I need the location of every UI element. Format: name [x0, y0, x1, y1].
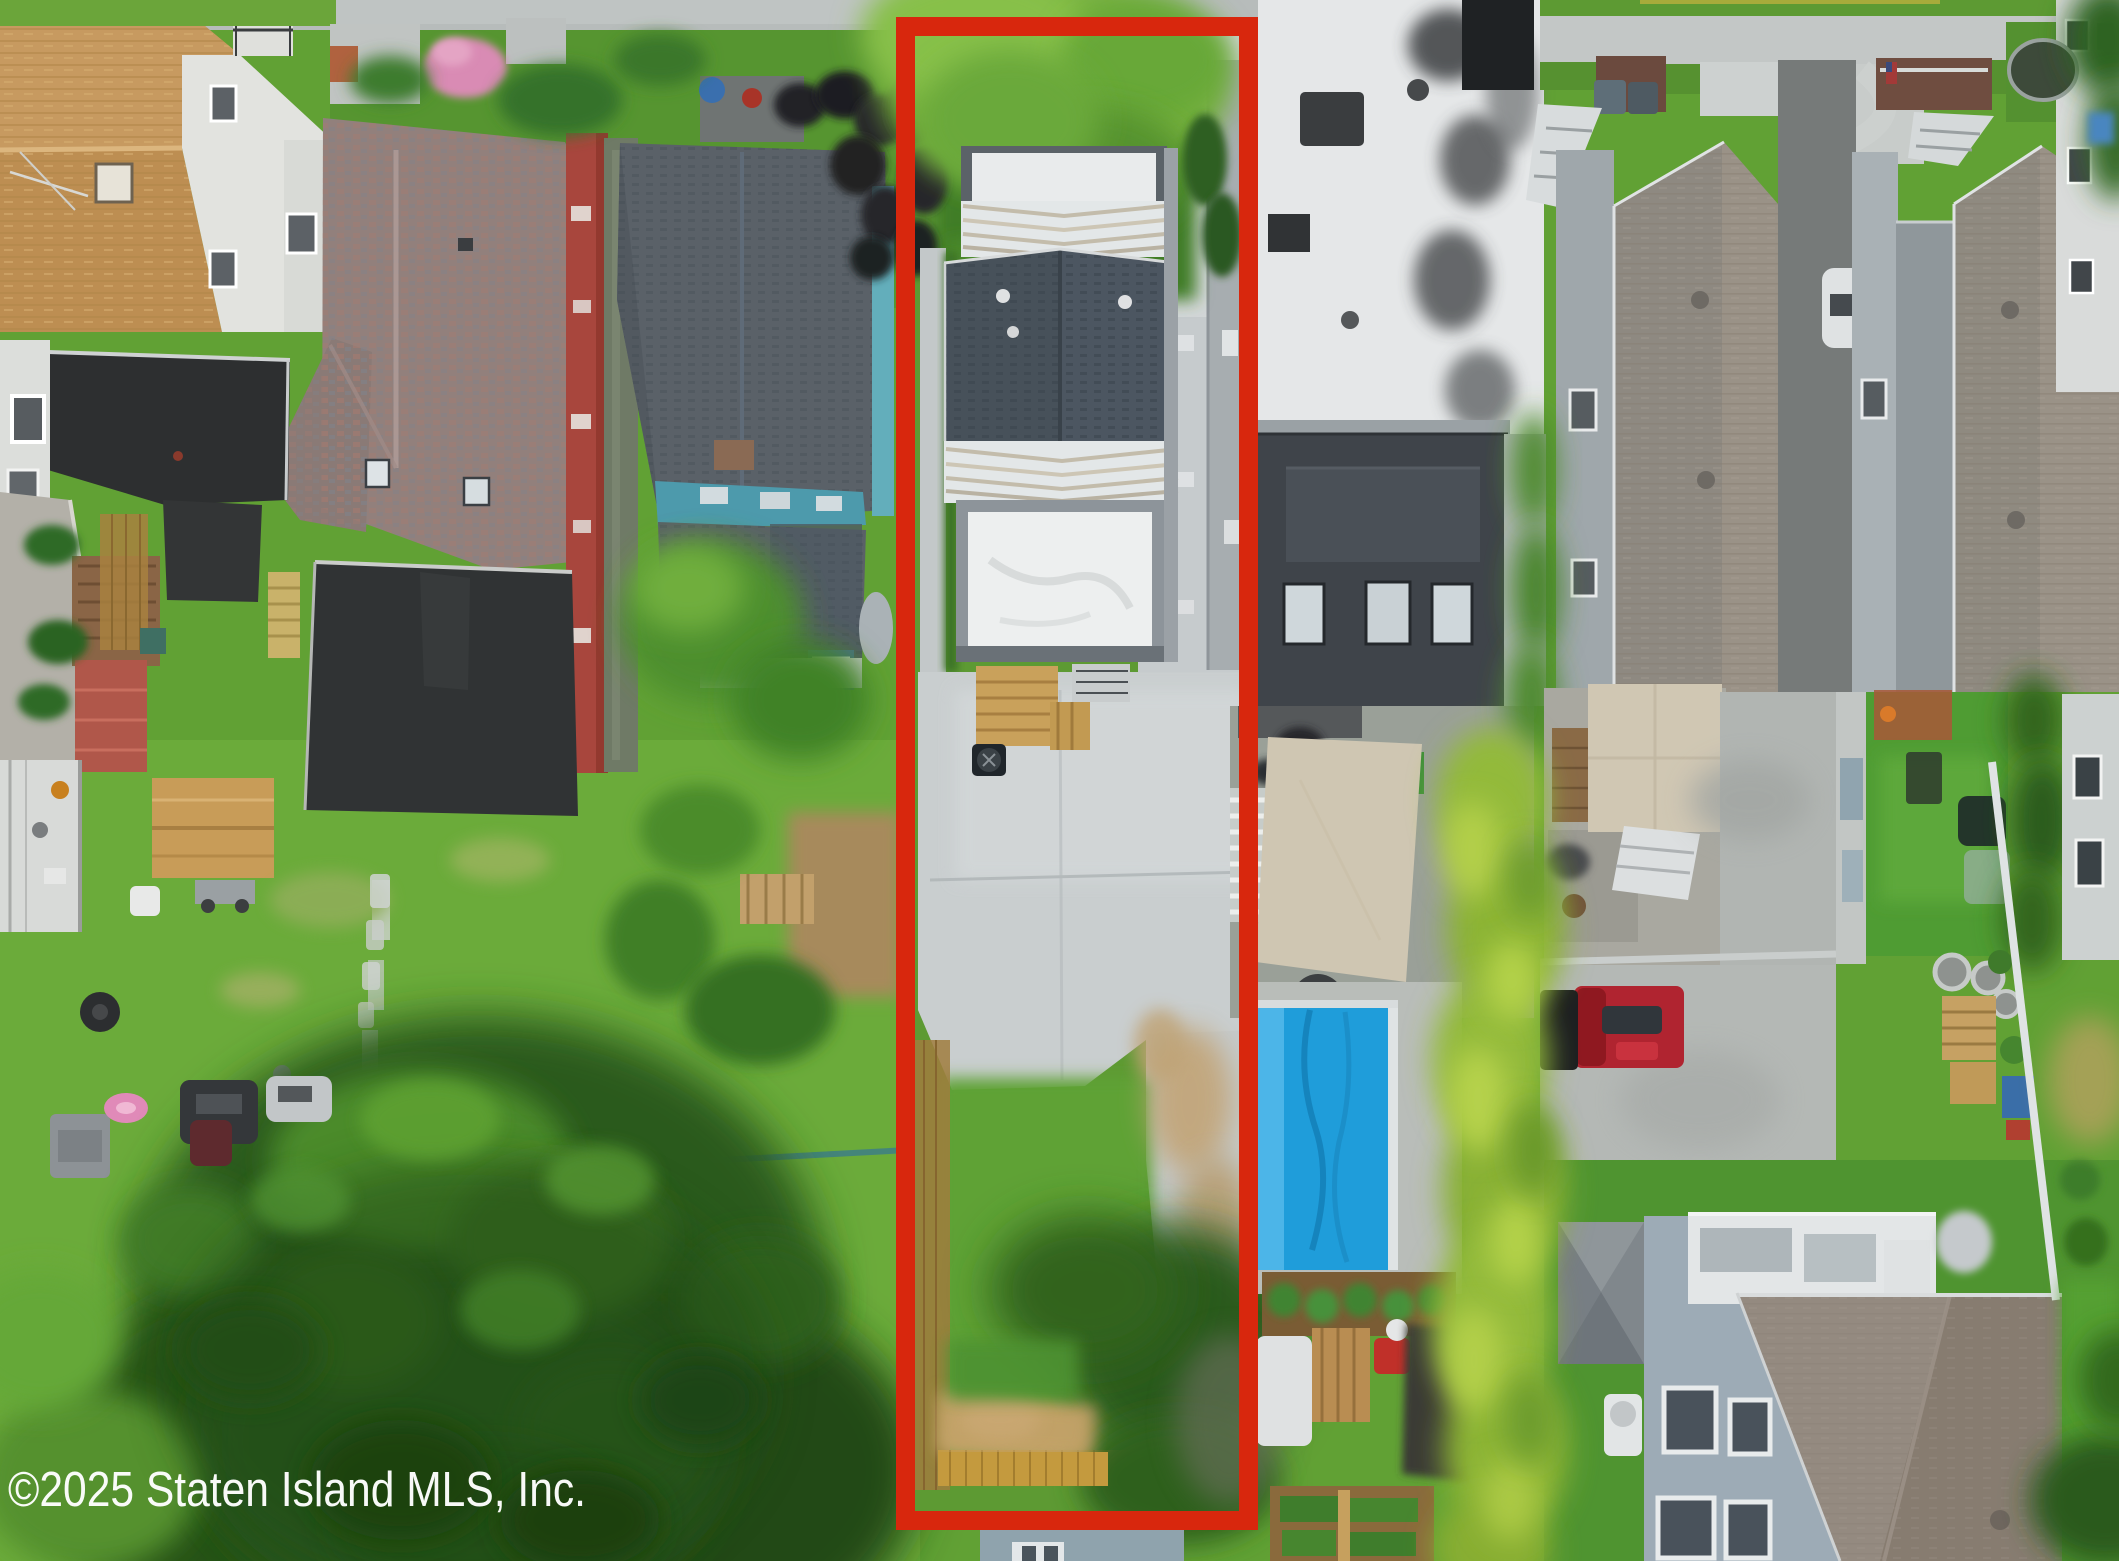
svg-text:©2025 Staten Island MLS, Inc.: ©2025 Staten Island MLS, Inc.	[8, 1463, 586, 1517]
